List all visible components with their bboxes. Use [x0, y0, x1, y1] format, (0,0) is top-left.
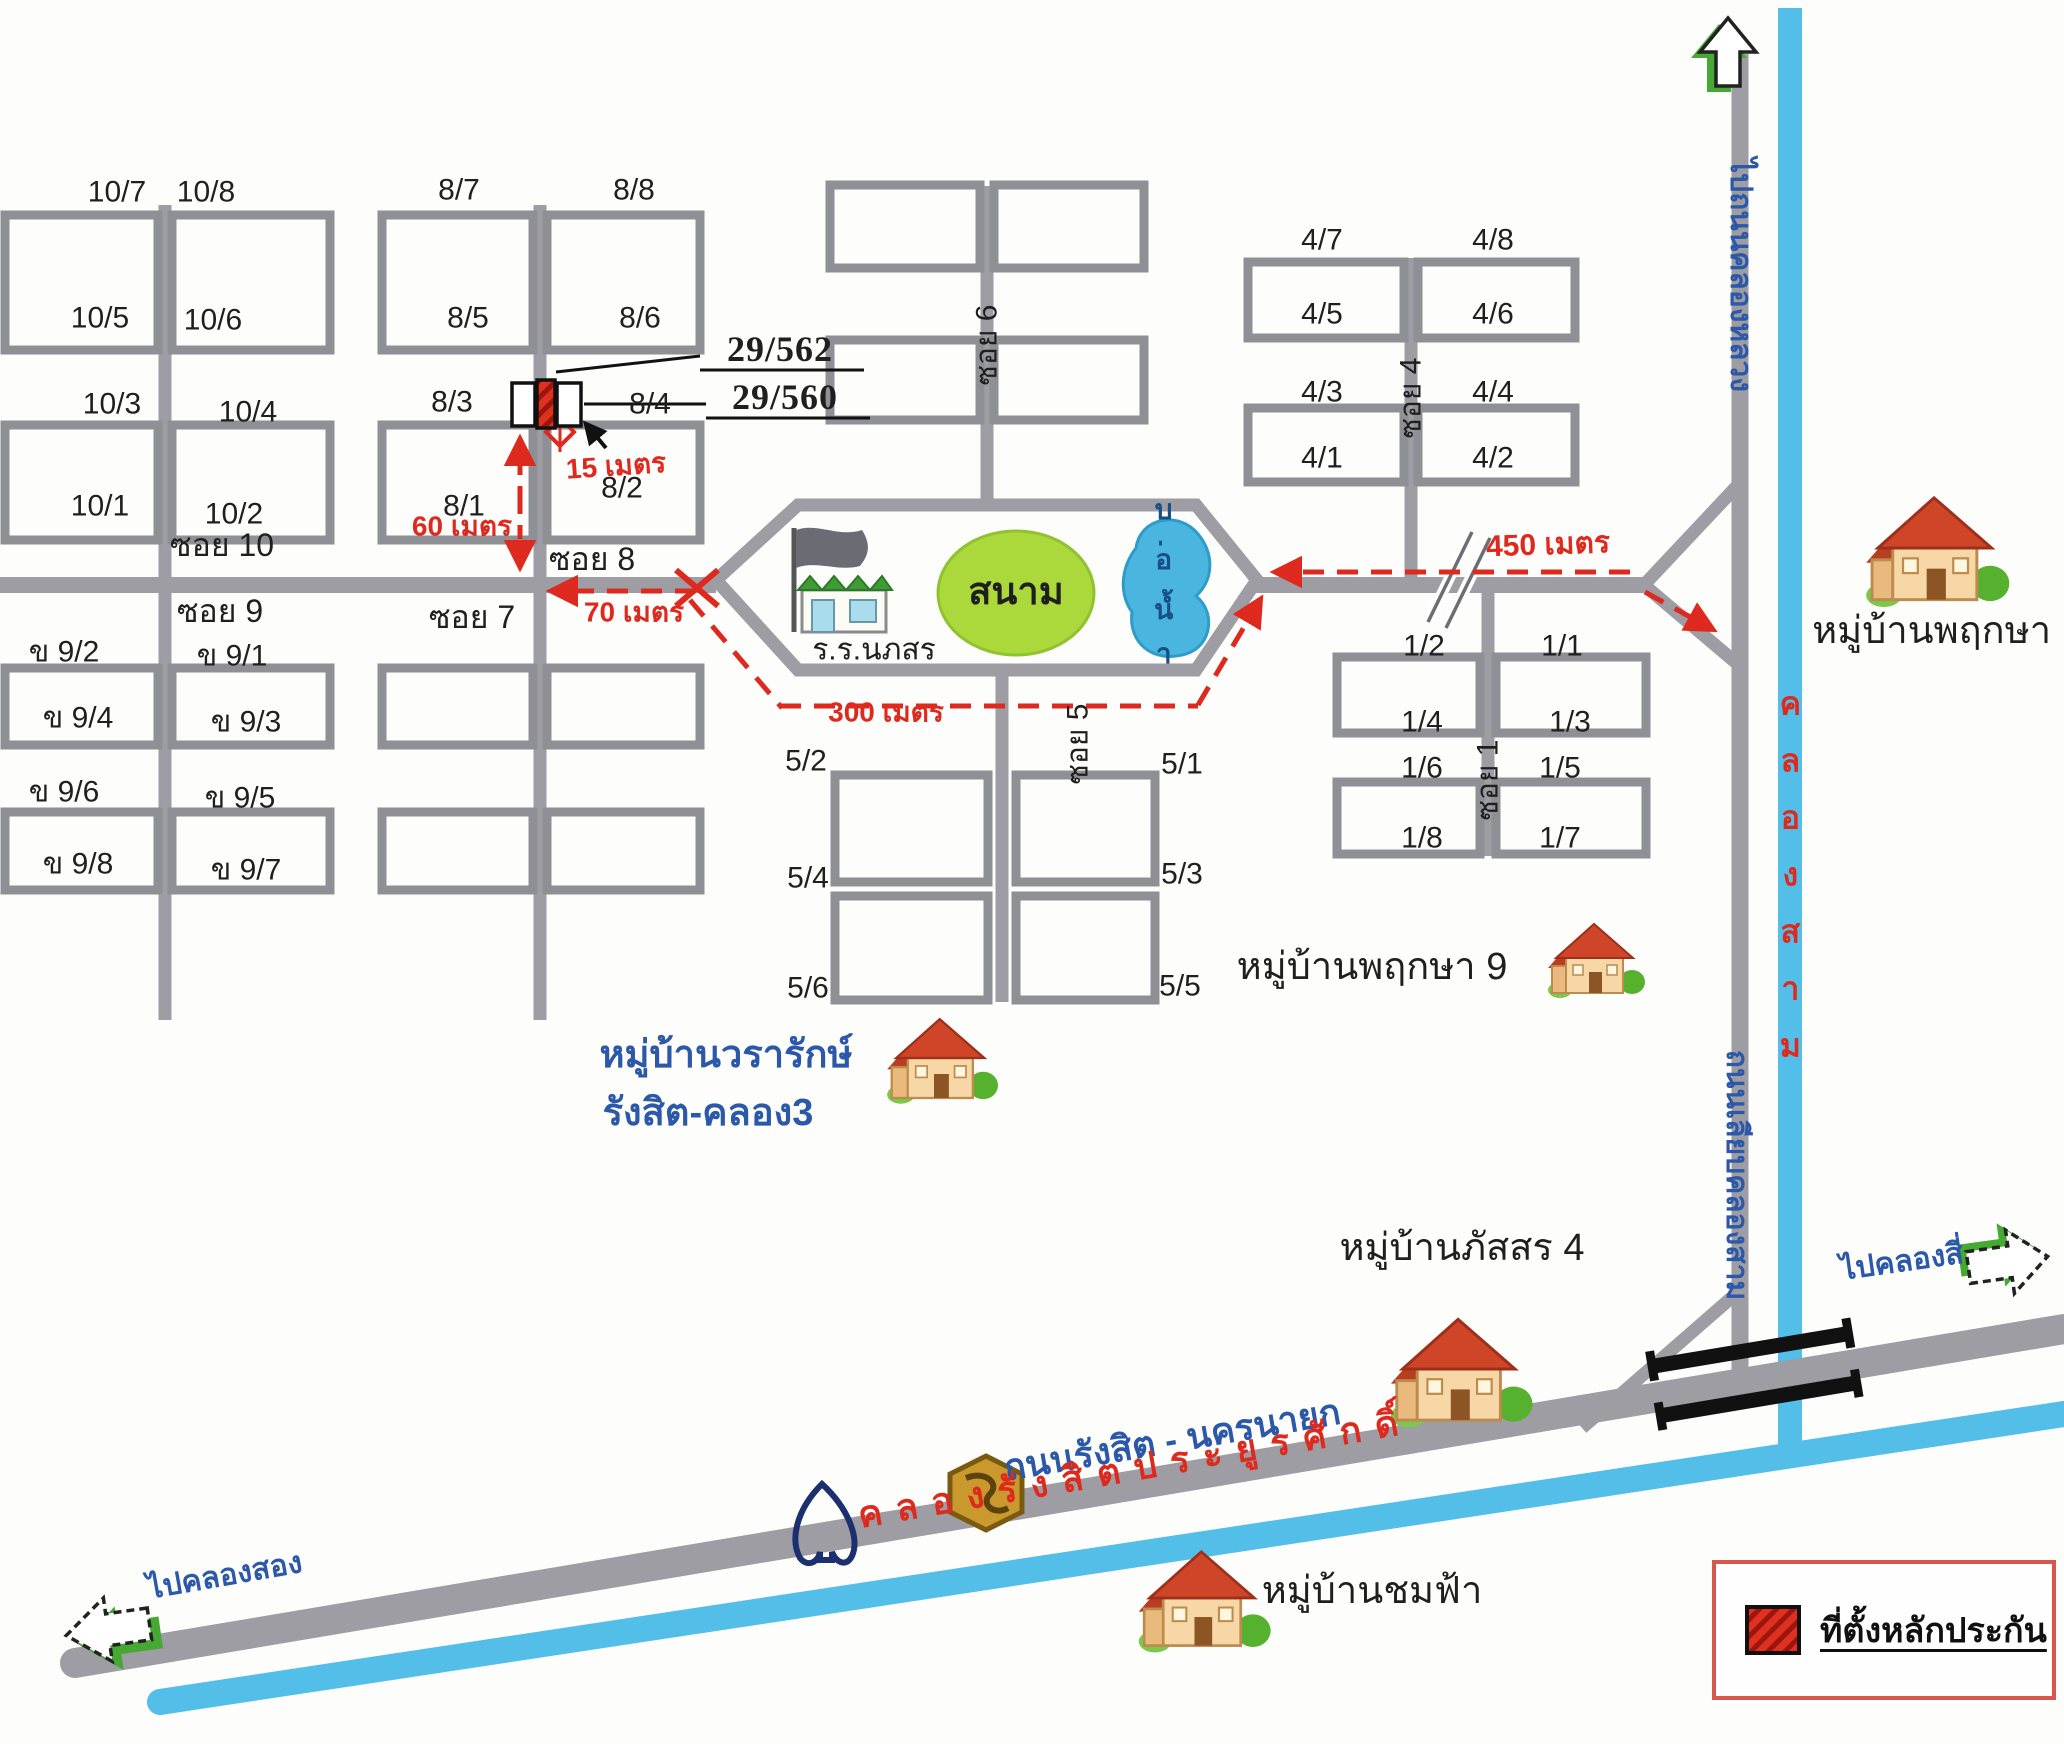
address-29-560: 29/560: [732, 379, 838, 417]
plot-8-8: 8/8: [613, 174, 655, 206]
pond-label: บ่อน้ำ: [1149, 488, 1178, 682]
village-chomfah: หมู่บ้านชมฟ้า: [1262, 1572, 1483, 1612]
plot-1-1: 1/1: [1541, 630, 1583, 662]
plot-10-2: 10/2: [205, 498, 263, 530]
plot-5-5: 5/5: [1159, 970, 1201, 1002]
plot-5-3: 5/3: [1161, 858, 1203, 890]
village-wararak-line1: หมู่บ้านวรารักษ์: [599, 1036, 852, 1076]
address-29-562: 29/562: [727, 331, 833, 369]
village-pruksa12: หมู่บ้านพฤกษา 12: [1812, 612, 2064, 652]
soi-1-label: ซอย 1: [1472, 740, 1504, 821]
soi-7-label: ซอย 7: [429, 601, 515, 635]
plot-5-1: 5/1: [1161, 748, 1203, 780]
map-canvas: 10/710/810/510/610/310/410/110/28/78/88/…: [0, 0, 2064, 1744]
plot-9-8: ข 9/8: [43, 848, 114, 880]
plot-9-6: ข 9/6: [29, 776, 100, 808]
plot-10-7: 10/7: [88, 176, 146, 208]
soi-9-label: ซอย 9: [177, 595, 263, 629]
plot-1-5: 1/5: [1539, 752, 1581, 784]
plot-4-7: 4/7: [1301, 224, 1343, 256]
road-liab-khlong-sam: ถนนเลียบคลองสาม: [1720, 1050, 1752, 1301]
plot-1-4: 1/4: [1401, 706, 1443, 738]
plot-9-3: ข 9/3: [211, 706, 282, 738]
plot-8-5: 8/5: [447, 302, 489, 334]
distance-15m: 15 เมตร: [565, 448, 667, 484]
plot-9-2: ข 9/2: [29, 636, 100, 668]
plot-4-2: 4/2: [1472, 442, 1514, 474]
soi-5-label: ซอย 5: [1062, 704, 1094, 785]
plot-8-3: 8/3: [431, 386, 473, 418]
plot-1-3: 1/3: [1549, 706, 1591, 738]
village-pruksa9: หมู่บ้านพฤกษา 9: [1237, 948, 1508, 988]
legend-box: ที่ตั้งหลักประกัน: [1712, 1560, 2056, 1700]
soi-10-label: ซอย 10: [170, 529, 274, 563]
plot-8-4: 8/4: [629, 388, 671, 420]
canal-rangsit-prayoonsak: คลองรังสิตประยูรศักดิ์: [855, 1402, 1415, 1535]
distance-450m: 450 เมตร: [1485, 527, 1610, 563]
plot-1-6: 1/6: [1401, 752, 1443, 784]
to-khlong-si: ไปคลองสี่: [1839, 1238, 1966, 1286]
label-layer: 10/710/810/510/610/310/410/110/28/78/88/…: [0, 0, 2064, 1744]
plot-4-5: 4/5: [1301, 298, 1343, 330]
to-khlong-luang-road: ไปถนนคลองหลวง: [1724, 158, 1756, 392]
field-label: สนาม: [968, 573, 1064, 613]
plot-1-7: 1/7: [1539, 822, 1581, 854]
to-khlong-song: ไปคลองสอง: [145, 1547, 304, 1605]
plot-8-6: 8/6: [619, 302, 661, 334]
plot-4-4: 4/4: [1472, 376, 1514, 408]
legend-label: ที่ตั้งหลักประกัน: [1820, 1603, 2047, 1657]
plot-1-2: 1/2: [1403, 630, 1445, 662]
plot-4-1: 4/1: [1301, 442, 1343, 474]
legend-collateral-swatch: [1744, 1604, 1802, 1656]
village-passorn4: หมู่บ้านภัสสร 4: [1339, 1229, 1584, 1269]
canal-khlong-sam: คลองสาม: [1773, 679, 1807, 1078]
plot-4-8: 4/8: [1472, 224, 1514, 256]
plot-5-6: 5/6: [787, 972, 829, 1004]
plot-8-7: 8/7: [438, 174, 480, 206]
plot-5-2: 5/2: [785, 745, 827, 777]
plot-1-8: 1/8: [1401, 822, 1443, 854]
soi-4-label: ซอย 4: [1395, 358, 1427, 439]
plot-10-8: 10/8: [177, 176, 235, 208]
plot-4-6: 4/6: [1472, 298, 1514, 330]
plot-10-6: 10/6: [184, 304, 242, 336]
plot-5-4: 5/4: [787, 862, 829, 894]
distance-70m: 70 เมตร: [584, 597, 684, 626]
plot-4-3: 4/3: [1301, 376, 1343, 408]
plot-9-1: ข 9/1: [197, 640, 268, 672]
plot-9-7: ข 9/7: [211, 854, 282, 886]
distance-60m: 60 เมตร: [412, 511, 512, 540]
plot-10-3: 10/3: [83, 388, 141, 420]
soi-8-label: ซอย 8: [549, 543, 635, 577]
plot-10-5: 10/5: [71, 302, 129, 334]
plot-9-5: ข 9/5: [205, 782, 276, 814]
plot-10-4: 10/4: [219, 396, 277, 428]
soi-6-label: ซอย 6: [971, 305, 1003, 386]
distance-300m: 300 เมตร: [828, 697, 944, 726]
plot-10-1: 10/1: [71, 490, 129, 522]
plot-9-4: ข 9/4: [43, 702, 114, 734]
school-label: ร.ร.นภสร: [812, 634, 936, 666]
village-wararak-line2: รังสิต-คลอง3: [603, 1094, 814, 1134]
